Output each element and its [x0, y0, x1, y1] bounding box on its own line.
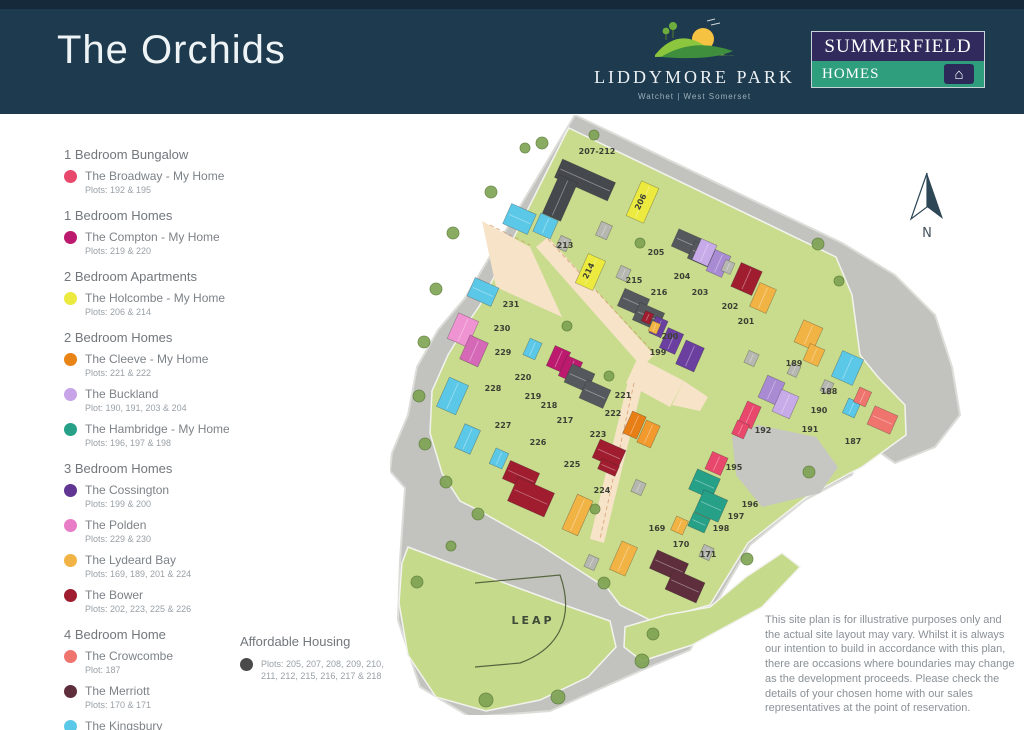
legend-item-dot — [64, 554, 77, 567]
legend-item: The KingsburyPlots: 188, 213, 227, 228 &… — [64, 719, 279, 730]
tree-icon — [604, 371, 614, 381]
plot-label-204: 204 — [674, 272, 691, 281]
tree-icon — [551, 690, 565, 704]
plot-label-225: 225 — [564, 460, 581, 469]
plot-label-187: 187 — [845, 437, 862, 446]
north-arrow-icon: N — [911, 173, 943, 241]
plot-label-170: 170 — [673, 540, 690, 549]
legend-item: The BucklandPlot: 190, 191, 203 & 204 — [64, 387, 279, 413]
plot-label-202: 202 — [722, 302, 739, 311]
legend-item-dot — [64, 650, 77, 663]
legend-item: The Cleeve - My HomePlots: 221 & 222 — [64, 352, 279, 378]
legend-item-plots: Plots: 202, 223, 225 & 226 — [85, 604, 279, 614]
plot-label-222: 222 — [605, 409, 622, 418]
plot-label-229: 229 — [495, 348, 512, 357]
legend-item-dot — [64, 519, 77, 532]
legend-item: The Lydeard BayPlots: 169, 189, 201 & 22… — [64, 553, 279, 579]
plot-label-207-212: 207-212 — [579, 147, 616, 156]
legend-item: The MerriottPlots: 170 & 171 — [64, 684, 279, 710]
plot-label-192: 192 — [755, 426, 772, 435]
legend-item-dot — [64, 685, 77, 698]
legend-category-label: 2 Bedroom Homes — [64, 330, 279, 345]
affordable-label: Affordable Housing — [240, 634, 400, 649]
summerfield-logo: SUMMERFIELD HOMES ⌂ — [811, 31, 985, 88]
affordable-dot — [240, 658, 253, 671]
plot-label-218: 218 — [541, 401, 558, 410]
tree-icon — [479, 693, 493, 707]
plot-label-219: 219 — [525, 392, 542, 401]
plot-label-191: 191 — [802, 425, 819, 434]
legend-item-plots: Plots: 229 & 230 — [85, 534, 279, 544]
legend-item-name: The Kingsbury — [85, 719, 162, 730]
legend-item-dot — [64, 292, 77, 305]
legend-item-dot — [64, 231, 77, 244]
legend-item-name: The Compton - My Home — [85, 230, 220, 244]
legend-item: The Broadway - My HomePlots: 192 & 195 — [64, 169, 279, 195]
plot-label-220: 220 — [515, 373, 532, 382]
legend-item-dot — [64, 720, 77, 730]
tree-icon — [812, 238, 824, 250]
page: The Orchids LIDDYMORE PARK Watchet | Wes… — [0, 0, 1024, 730]
plot-label-216: 216 — [651, 288, 668, 297]
legend-item-dot — [64, 170, 77, 183]
liddymore-location: Watchet | West Somerset — [592, 92, 797, 101]
plot-label-217: 217 — [557, 416, 574, 425]
tree-icon — [834, 276, 844, 286]
affordable-housing-note: Affordable Housing Plots: 205, 207, 208,… — [240, 634, 400, 682]
plot-label-196: 196 — [742, 500, 759, 509]
legend-item-name: The Cossington — [85, 483, 169, 497]
tree-icon — [446, 541, 456, 551]
leap-label: LEAP — [511, 614, 554, 627]
legend-item-name: The Lydeard Bay — [85, 553, 176, 567]
plot-label-197: 197 — [728, 512, 745, 521]
legend-category-label: 2 Bedroom Apartments — [64, 269, 279, 284]
legend-item-name: The Bower — [85, 588, 143, 602]
tree-icon — [440, 476, 452, 488]
tree-icon — [741, 553, 753, 565]
tree-icon — [635, 238, 645, 248]
plot-label-228: 228 — [485, 384, 502, 393]
tree-icon — [803, 466, 815, 478]
legend-category-label: 1 Bedroom Bungalow — [64, 147, 279, 162]
legend-item-name: The Crowcombe — [85, 649, 173, 663]
plot-label-195: 195 — [726, 463, 743, 472]
legend-item-name: The Hambridge - My Home — [85, 422, 230, 436]
site-plan-svg: 207-212206213214205215216204203202201200… — [390, 115, 970, 715]
legend-item-plots: Plots: 169, 189, 201 & 224 — [85, 569, 279, 579]
legend-item: The PoldenPlots: 229 & 230 — [64, 518, 279, 544]
legend-item-name: The Polden — [85, 518, 146, 532]
tree-icon — [590, 504, 600, 514]
legend-item: The CossingtonPlots: 199 & 200 — [64, 483, 279, 509]
plot-label-227: 227 — [495, 421, 512, 430]
legend-item-dot — [64, 484, 77, 497]
summerfield-homes-bar: HOMES ⌂ — [812, 61, 984, 87]
plot-label-189: 189 — [786, 359, 803, 368]
tree-icon — [413, 390, 425, 402]
tree-icon — [418, 336, 430, 348]
legend-item-plots: Plots: 206 & 214 — [85, 307, 279, 317]
legend-category-label: 3 Bedroom Homes — [64, 461, 279, 476]
legend-item: The BowerPlots: 202, 223, 225 & 226 — [64, 588, 279, 614]
tree-icon — [447, 227, 459, 239]
tree-icon — [419, 438, 431, 450]
summerfield-name: SUMMERFIELD — [812, 32, 984, 61]
legend-item-dot — [64, 423, 77, 436]
legend-item-name: The Holcombe - My Home — [85, 291, 225, 305]
plot-label-230: 230 — [494, 324, 511, 333]
tree-icon — [430, 283, 442, 295]
house-icon: ⌂ — [944, 64, 974, 84]
tree-icon — [485, 186, 497, 198]
header: The Orchids LIDDYMORE PARK Watchet | Wes… — [0, 0, 1024, 114]
plot-label-223: 223 — [590, 430, 607, 439]
plot-label-199: 199 — [650, 348, 667, 357]
plot-label-190: 190 — [811, 406, 828, 415]
plot-label-215: 215 — [626, 276, 643, 285]
legend-item-name: The Merriott — [85, 684, 150, 698]
legend-item-dot — [64, 589, 77, 602]
legend-item-plots: Plots: 199 & 200 — [85, 499, 279, 509]
liddymore-hills-icon — [653, 11, 737, 61]
plot-label-221: 221 — [615, 391, 632, 400]
plot-label-188: 188 — [821, 387, 838, 396]
tree-icon — [472, 508, 484, 520]
legend-item-dot — [64, 353, 77, 366]
legend-item-name: The Broadway - My Home — [85, 169, 224, 183]
plot-label-201: 201 — [738, 317, 755, 326]
plot-label-203: 203 — [692, 288, 709, 297]
tree-icon — [411, 576, 423, 588]
tree-icon — [589, 130, 599, 140]
legend-item-plots: Plots: 196, 197 & 198 — [85, 438, 279, 448]
tree-icon — [562, 321, 572, 331]
plot-label-200: 200 — [662, 332, 679, 341]
plot-label-171: 171 — [700, 550, 717, 559]
tree-icon — [647, 628, 659, 640]
plot-label-198: 198 — [713, 524, 730, 533]
legend-item-dot — [64, 388, 77, 401]
legend-item-plots: Plots: 170 & 171 — [85, 700, 279, 710]
plot-label-169: 169 — [649, 524, 666, 533]
plot-label-226: 226 — [530, 438, 547, 447]
summerfield-homes-label: HOMES — [822, 66, 880, 83]
tree-icon — [598, 577, 610, 589]
legend-item: The Compton - My HomePlots: 219 & 220 — [64, 230, 279, 256]
legend-category-label: 1 Bedroom Homes — [64, 208, 279, 223]
tree-icon — [520, 143, 530, 153]
legend-item-plots: Plots: 192 & 195 — [85, 185, 279, 195]
legend-item-plots: Plots: 219 & 220 — [85, 246, 279, 256]
affordable-row: Plots: 205, 207, 208, 209, 210, 211, 212… — [240, 658, 400, 682]
legend-item: The Holcombe - My HomePlots: 206 & 214 — [64, 291, 279, 317]
page-title: The Orchids — [57, 28, 286, 73]
liddymore-logo: LIDDYMORE PARK Watchet | West Somerset — [592, 11, 797, 101]
legend-item-name: The Buckland — [85, 387, 158, 401]
plot-label-213: 213 — [557, 241, 574, 250]
legend-item-name: The Cleeve - My Home — [85, 352, 208, 366]
liddymore-name: LIDDYMORE PARK — [592, 67, 797, 88]
affordable-plots: Plots: 205, 207, 208, 209, 210, 211, 212… — [261, 658, 391, 682]
legend-item: The Hambridge - My HomePlots: 196, 197 &… — [64, 422, 279, 448]
plot-label-205: 205 — [648, 248, 665, 257]
plot-label-231: 231 — [503, 300, 520, 309]
legend-item-plots: Plot: 190, 191, 203 & 204 — [85, 403, 279, 413]
north-label: N — [922, 226, 932, 241]
legend-item-plots: Plots: 221 & 222 — [85, 368, 279, 378]
tree-icon — [536, 137, 548, 149]
tree-icon — [635, 654, 649, 668]
plot-label-224: 224 — [594, 486, 611, 495]
